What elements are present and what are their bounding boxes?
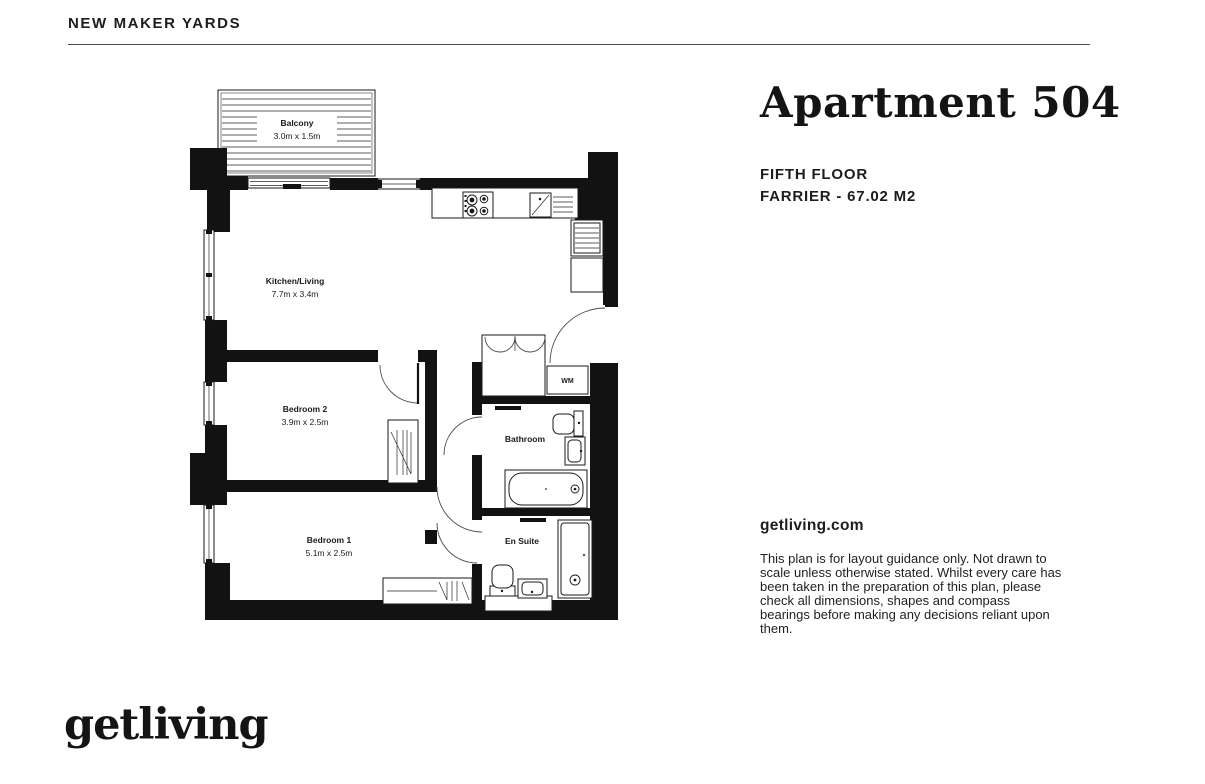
kitchen-unit-icon [571,258,603,292]
balcony-area: Balcony 3.0m x 1.5m [218,90,375,176]
room-label-bedroom-2: Bedroom 2 [283,404,328,414]
room-label-balcony: Balcony [280,118,313,128]
kitchen-counter [432,188,578,218]
disclaimer-text: This plan is for layout guidance only. N… [760,552,1063,636]
basin-icon [518,579,547,598]
development-name: NEW MAKER YARDS [68,15,241,32]
unit-area-label: FARRIER - 67.02 M2 [760,186,916,208]
room-label-bedroom-1: Bedroom 1 [307,535,352,545]
room-dim-bedroom-1: 5.1m x 2.5m [306,548,353,558]
room-dim-kitchen-living: 7.7m x 3.4m [272,289,319,299]
wardrobe-icon [383,578,472,604]
window-icon [204,505,214,563]
wardrobe-icon [388,420,418,483]
room-label-bathroom: Bathroom [505,434,546,444]
basin-icon [565,437,585,465]
room-dim-balcony: 3.0m x 1.5m [274,131,321,141]
wm-label: WM [561,378,574,385]
balcony-door-icon [248,178,330,189]
room-label-kitchen-living: Kitchen/Living [266,276,325,286]
towel-rail-icon [495,406,521,410]
room-dim-bedroom-2: 3.9m x 2.5m [282,417,329,427]
apartment-title: Apartment 504 [760,80,1121,126]
floorplan-page: NEW MAKER YARDS Balcony 3.0m x 1.5m [0,0,1205,784]
apartment-subtitle: FIFTH FLOOR FARRIER - 67.02 M2 [760,164,916,208]
getliving-logo: getliving [64,700,268,750]
hob-icon [463,192,493,218]
window-icon [204,382,214,425]
website-url: getliving.com [760,517,864,535]
header-divider [68,44,1090,45]
window-icon [204,230,214,320]
floor-plan: Balcony 3.0m x 1.5m [185,80,625,625]
washing-machine-icon: WM [547,366,588,394]
window-icon [378,179,420,189]
toilet-icon [553,411,583,436]
floor-label: FIFTH FLOOR [760,164,916,186]
shower-icon [558,520,592,598]
towel-rail-icon [520,518,546,522]
bathtub-icon [505,470,587,508]
utility-closet [482,335,545,396]
fridge-icon [571,220,603,256]
room-label-en-suite: En Suite [505,536,539,546]
toilet-icon [490,565,515,596]
